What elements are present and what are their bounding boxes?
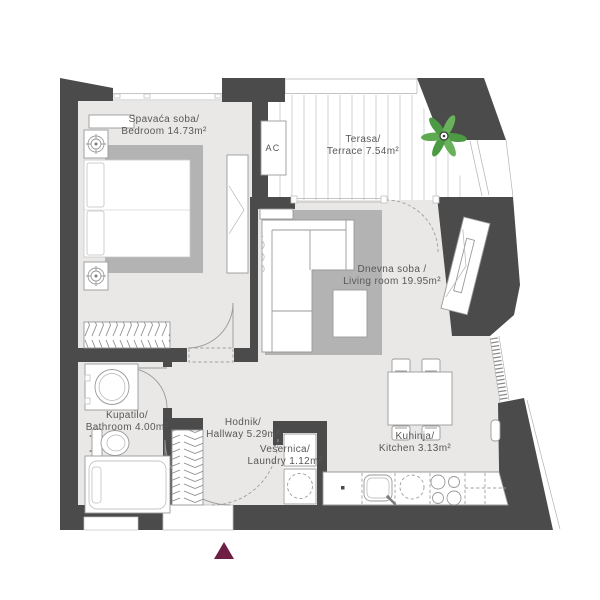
bathroom-label-line1: Kupatilo/ (106, 410, 148, 421)
hallway-label-line1: Hodnik/ (225, 417, 261, 428)
glazing-post (291, 196, 297, 203)
sink-icon (85, 364, 138, 410)
washing-machine-icon (284, 469, 316, 504)
wall-shelf (260, 209, 293, 219)
wall-top-pier (222, 78, 285, 102)
laundry-label-line1: Vešernica/ (260, 444, 310, 455)
kitchen-sink-icon (364, 475, 395, 504)
wall-bedroom-bottom-left (78, 348, 187, 362)
wall-bedroom-bottom-right (234, 348, 252, 362)
terrace-label-line1: Terasa/ (345, 134, 380, 145)
hallway-label-line2: Hallway 5.29m² (206, 429, 280, 440)
wall-bathroom-right-top (163, 362, 172, 367)
bedroom-window (113, 94, 222, 101)
nightstand-lamp-icon (84, 262, 108, 290)
wall-bottom-right (233, 505, 512, 530)
bathtub-icon (85, 456, 170, 513)
counter-handle (341, 486, 345, 490)
right-wall-niche (491, 420, 500, 441)
living-room-label-line1: Dnevna soba / (357, 264, 426, 275)
floor-plan: Spavaća soba/ Bedroom 14.73m² Terasa/ Te… (0, 0, 600, 600)
glazing-post (433, 196, 439, 203)
kitchen-label-line2: Kitchen 3.13m² (379, 443, 451, 454)
bed-pillow (87, 211, 104, 255)
kitchen-counter (323, 472, 508, 505)
coffee-table (333, 290, 367, 337)
bottom-wall-niche (84, 517, 138, 530)
glazing-post (381, 196, 387, 203)
laundry-label-line2: Laundry 1.12m² (248, 456, 323, 467)
bed-pillow (87, 163, 104, 207)
nightstand-lamp-icon (84, 130, 108, 158)
dining-table (388, 372, 452, 425)
wall-bedroom-living (250, 197, 258, 362)
ac-label: AC (266, 143, 281, 153)
toilet-icon (90, 429, 130, 457)
bedroom-wardrobe (227, 155, 248, 273)
bathroom-label-line2: Bathroom 4.00m² (86, 422, 169, 433)
living-room-label-line2: Living room 19.95m² (343, 276, 441, 287)
bedroom-closet-rail (84, 322, 170, 348)
terrace-side-glazing (470, 140, 513, 197)
terrace-label-line2: Terrace 7.54m² (327, 146, 399, 157)
wall-right-bottom (498, 398, 553, 530)
entrance-opening (163, 505, 233, 530)
terrace-railing (285, 79, 417, 94)
hallway-closet-rail (172, 430, 203, 505)
bedroom-label-line2: Bedroom 14.73m² (121, 126, 207, 137)
wall-closet-stub (170, 418, 203, 430)
kitchen-label-line1: Kuhinja/ (396, 431, 435, 442)
bedroom-label-line1: Spavaća soba/ (129, 114, 200, 125)
entrance-marker (214, 542, 234, 559)
